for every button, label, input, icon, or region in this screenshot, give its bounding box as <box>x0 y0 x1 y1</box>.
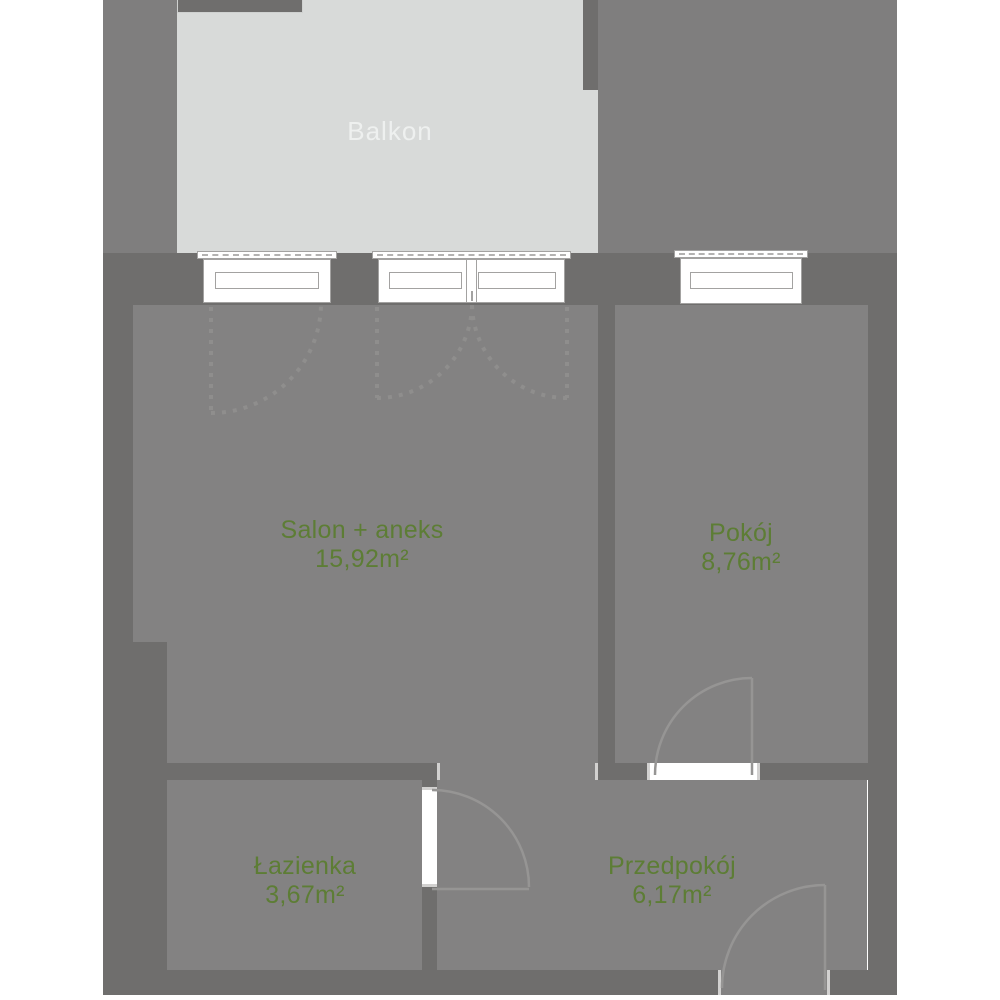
salon-balcony-door-swing-arc <box>211 305 321 413</box>
salon-label: Salon + aneks 15,92m² <box>280 516 443 574</box>
przedpokoj-area: 6,17m² <box>608 881 736 910</box>
pokoj-area: 8,76m² <box>701 548 781 577</box>
lazienka-area: 3,67m² <box>254 881 356 910</box>
double-door-left-swing-arc <box>377 305 472 398</box>
lazienka-label: Łazienka 3,67m² <box>254 852 356 910</box>
lazienka-name: Łazienka <box>254 852 356 881</box>
pokoj-name: Pokój <box>701 519 781 548</box>
balcony-label: Balkon <box>347 116 433 147</box>
przedpokoj-label: Przedpokój 6,17m² <box>608 852 736 910</box>
pokoj-door-swing-arc <box>655 678 752 775</box>
przedpokoj-name: Przedpokój <box>608 852 736 881</box>
pokoj-label: Pokój 8,76m² <box>701 519 781 577</box>
lazienka-door-swing-arc <box>432 790 529 887</box>
double-door-right-swing-arc <box>472 305 567 398</box>
entrance-door-swing-arc <box>722 885 825 988</box>
door-swing-overlay <box>0 0 1000 1000</box>
floor-plan: Balkon Salon + aneks 15,92m² Pokój 8,76m… <box>0 0 1000 1000</box>
salon-area: 15,92m² <box>280 545 443 574</box>
salon-name: Salon + aneks <box>280 516 443 545</box>
